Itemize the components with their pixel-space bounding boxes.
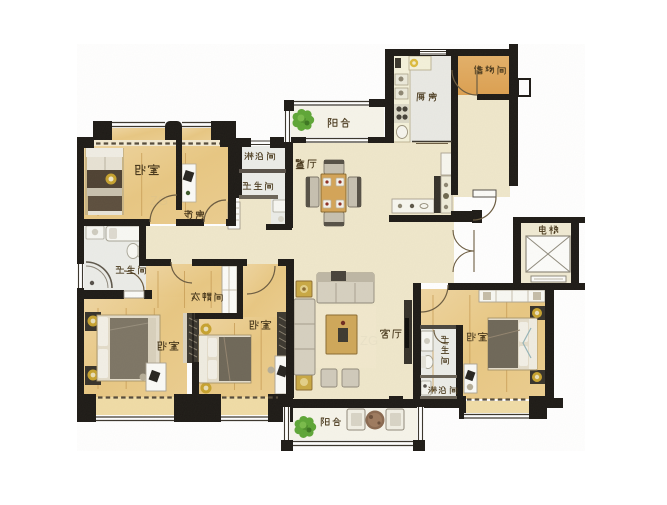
svg-text:ZG: ZG bbox=[150, 193, 168, 208]
svg-text:ZG: ZG bbox=[360, 333, 378, 348]
